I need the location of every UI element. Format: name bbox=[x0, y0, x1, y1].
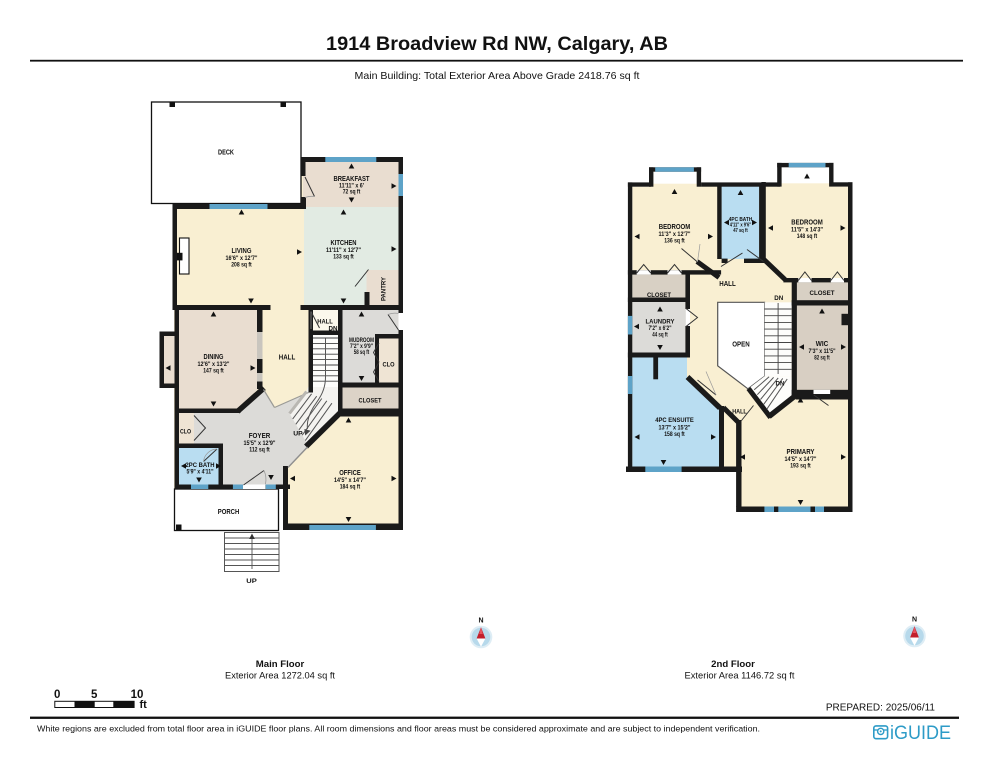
svg-text:KITCHEN: KITCHEN bbox=[331, 238, 357, 247]
svg-text:1914 Broadview Rd NW, Calgary,: 1914 Broadview Rd NW, Calgary, AB bbox=[326, 34, 668, 55]
svg-text:44 sq ft: 44 sq ft bbox=[652, 331, 668, 338]
svg-text:DN: DN bbox=[776, 382, 785, 388]
svg-text:82 sq ft: 82 sq ft bbox=[814, 354, 830, 361]
svg-text:148 sq ft: 148 sq ft bbox=[797, 233, 818, 240]
svg-text:133 sq ft: 133 sq ft bbox=[333, 253, 354, 260]
svg-text:136 sq ft: 136 sq ft bbox=[664, 237, 685, 244]
svg-text:47 sq ft: 47 sq ft bbox=[733, 228, 748, 234]
svg-text:4PC ENSUITE: 4PC ENSUITE bbox=[655, 417, 694, 424]
svg-text:CLO: CLO bbox=[383, 362, 395, 369]
svg-text:LIVING: LIVING bbox=[232, 246, 252, 255]
svg-text:OPEN: OPEN bbox=[732, 340, 750, 349]
svg-text:Exterior Area 1272.04 sq ft: Exterior Area 1272.04 sq ft bbox=[225, 671, 335, 681]
svg-text:Main Floor: Main Floor bbox=[256, 659, 305, 670]
svg-text:HALL: HALL bbox=[732, 409, 747, 416]
svg-text:DINING: DINING bbox=[204, 352, 224, 361]
svg-text:N: N bbox=[912, 617, 917, 624]
svg-text:2nd Floor: 2nd Floor bbox=[711, 659, 755, 670]
svg-text:184 sq ft: 184 sq ft bbox=[340, 483, 361, 490]
svg-text:DN: DN bbox=[774, 296, 783, 302]
svg-text:0: 0 bbox=[54, 689, 60, 701]
svg-text:158 sq ft: 158 sq ft bbox=[664, 431, 685, 438]
svg-text:WIC: WIC bbox=[816, 339, 829, 348]
svg-text:PORCH: PORCH bbox=[218, 507, 240, 516]
svg-text:N: N bbox=[478, 618, 483, 625]
svg-text:PANTRY: PANTRY bbox=[382, 277, 388, 301]
svg-text:DN: DN bbox=[329, 326, 338, 333]
svg-text:FOYER: FOYER bbox=[249, 431, 271, 440]
svg-text:BEDROOM: BEDROOM bbox=[659, 222, 691, 231]
svg-text:ft: ft bbox=[140, 699, 148, 711]
svg-text:PRIMARY: PRIMARY bbox=[787, 447, 815, 456]
svg-text:58 sq ft: 58 sq ft bbox=[354, 349, 370, 356]
svg-text:HALL: HALL bbox=[279, 353, 296, 362]
svg-text:UP: UP bbox=[246, 578, 257, 585]
svg-text:White regions are excluded fro: White regions are excluded from total fl… bbox=[37, 724, 760, 734]
svg-text:Main Building: Total Exterior: Main Building: Total Exterior Area Above… bbox=[355, 70, 640, 82]
svg-text:208 sq ft: 208 sq ft bbox=[231, 261, 252, 268]
svg-text:CLO: CLO bbox=[180, 429, 191, 436]
svg-text:OFFICE: OFFICE bbox=[339, 468, 361, 477]
svg-text:5'9" x 4'11": 5'9" x 4'11" bbox=[187, 469, 214, 476]
svg-text:5: 5 bbox=[91, 689, 98, 701]
svg-text:112 sq ft: 112 sq ft bbox=[249, 446, 270, 453]
svg-text:72 sq ft: 72 sq ft bbox=[343, 189, 361, 196]
svg-text:CLOSET: CLOSET bbox=[810, 290, 835, 297]
svg-text:CLOSET: CLOSET bbox=[647, 292, 671, 299]
svg-text:PREPARED: 2025/06/11: PREPARED: 2025/06/11 bbox=[826, 703, 936, 714]
svg-text:BEDROOM: BEDROOM bbox=[791, 218, 823, 227]
svg-text:DECK: DECK bbox=[218, 148, 235, 157]
svg-text:CLOSET: CLOSET bbox=[359, 398, 382, 405]
svg-text:HALL: HALL bbox=[719, 279, 736, 288]
svg-text:Exterior Area 1146.72 sq ft: Exterior Area 1146.72 sq ft bbox=[685, 671, 795, 681]
svg-text:147 sq ft: 147 sq ft bbox=[203, 367, 224, 374]
svg-text:UP: UP bbox=[293, 431, 303, 438]
svg-text:HALL: HALL bbox=[317, 319, 333, 326]
svg-text:iGUIDE: iGUIDE bbox=[890, 723, 951, 744]
svg-text:193 sq ft: 193 sq ft bbox=[790, 463, 811, 470]
